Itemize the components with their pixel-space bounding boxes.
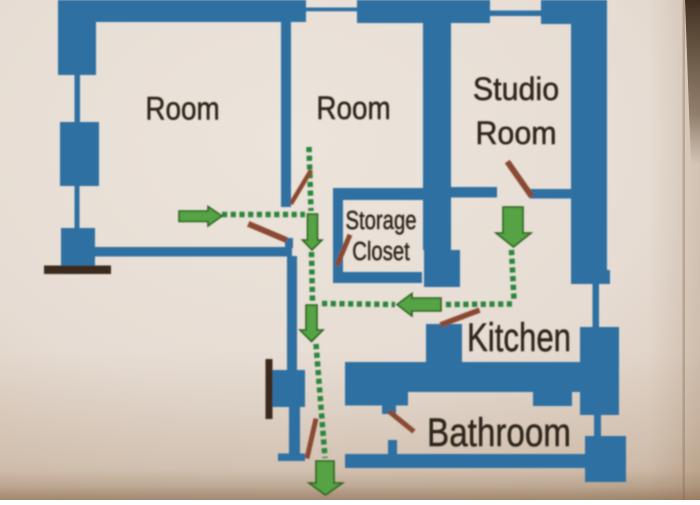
svg-text:Room: Room bbox=[316, 91, 390, 126]
svg-text:Room: Room bbox=[145, 92, 219, 127]
svg-text:Storage: Storage bbox=[346, 206, 417, 235]
svg-text:Bathroom: Bathroom bbox=[427, 410, 571, 455]
svg-text:Kitchen: Kitchen bbox=[467, 315, 571, 360]
svg-text:Room: Room bbox=[475, 115, 556, 151]
svg-text:Studio: Studio bbox=[473, 71, 559, 107]
svg-text:Closet: Closet bbox=[352, 237, 410, 266]
